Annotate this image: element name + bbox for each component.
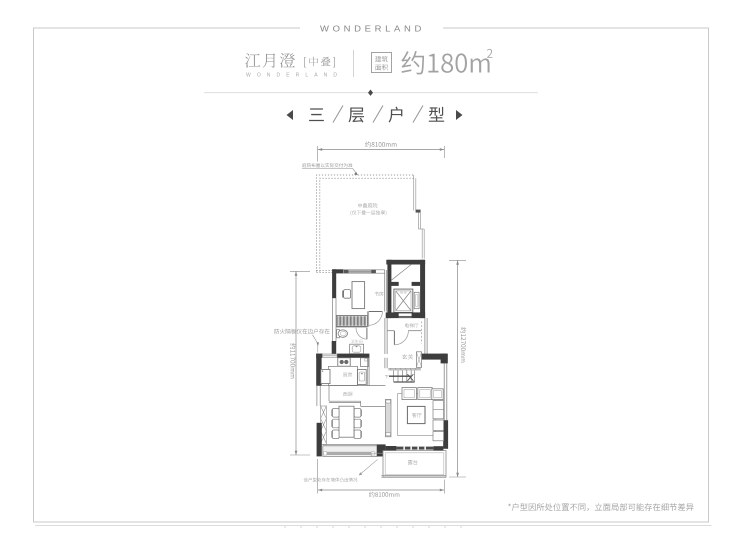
svg-text:WONDERLAND: WONDERLAND: [246, 73, 337, 79]
svg-text:WONDERLAND: WONDERLAND: [320, 25, 425, 34]
